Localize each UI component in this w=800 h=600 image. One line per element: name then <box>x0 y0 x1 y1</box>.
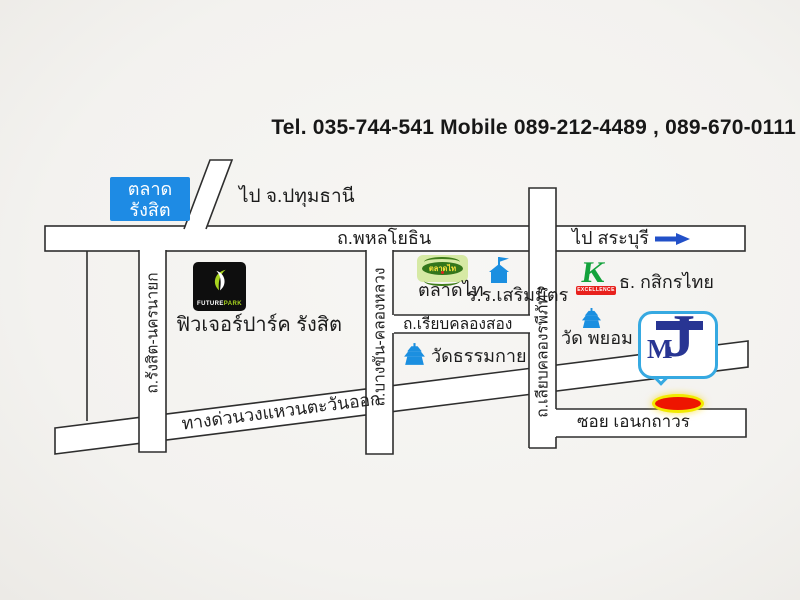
rangsit-nakhonnayok-label: ถ.รังสิต-นครนายก <box>140 272 165 393</box>
arrow-right-icon <box>655 232 691 246</box>
serm-mit-school-label: ร.ร.เสริมมิตร <box>467 286 568 306</box>
future-park-leaf-icon <box>206 267 234 295</box>
future-park-label: ฟิวเจอร์ปาร์ค รังสิต <box>176 314 342 336</box>
rangsit-market-line1: ตลาด <box>110 179 190 200</box>
location-marker-oval <box>655 397 701 410</box>
to-saraburi-label: ไป สระบุรี <box>572 229 649 249</box>
mj-letter-m: M <box>647 334 672 365</box>
to-pathumthani-label: ไป จ.ปทุมธานี <box>239 187 355 208</box>
road-to-pathumthani-fill <box>184 160 232 231</box>
kbank-logo: K EXCELLENCE <box>576 260 616 296</box>
mj-logo-bubble: J M <box>638 311 718 379</box>
school-flag-icon <box>486 256 512 284</box>
phahonyothin-label: ถ.พหลโยธิน <box>337 229 431 249</box>
road-network <box>0 0 800 600</box>
kbank-excellence-banner: EXCELLENCE <box>576 286 616 295</box>
kbank-k-icon: K <box>580 256 608 290</box>
future-park-logo: FUTUREPARK <box>193 262 246 311</box>
rangsit-market-line2: รังสิต <box>110 200 190 221</box>
riab-khlong-song-label: ถ.เรียบคลองสอง <box>403 316 512 333</box>
soi-anek-thavorn-label: ซอย เอนกถาวร <box>577 413 690 432</box>
liab-khlong-raphiphat-label: ถ.เลียบคลองรพีภัทร <box>530 286 555 417</box>
wat-dhammakaya-label: วัดธรรมกาย <box>431 347 527 367</box>
talaad-thai-logo: ตลาดไท <box>417 255 468 282</box>
wat-phayom-temple-icon <box>579 308 604 329</box>
rangsit-market-box: ตลาด รังสิต <box>110 177 190 221</box>
wat-phayom-label: วัด พยอม <box>561 329 633 349</box>
future-park-logo-text: FUTUREPARK <box>193 301 246 307</box>
future-park-logo-white: FUTURE <box>197 301 224 307</box>
talaad-thai-dot <box>441 271 444 274</box>
scanned-map-page: Tel. 035-744-541 Mobile 089-212-4489 , 0… <box>0 0 800 600</box>
wat-dhammakaya-temple-icon <box>401 343 428 366</box>
road-junction-patch <box>531 228 555 250</box>
kbank-label: ธ. กสิกรไทย <box>619 273 714 293</box>
future-park-logo-green: PARK <box>224 301 242 307</box>
